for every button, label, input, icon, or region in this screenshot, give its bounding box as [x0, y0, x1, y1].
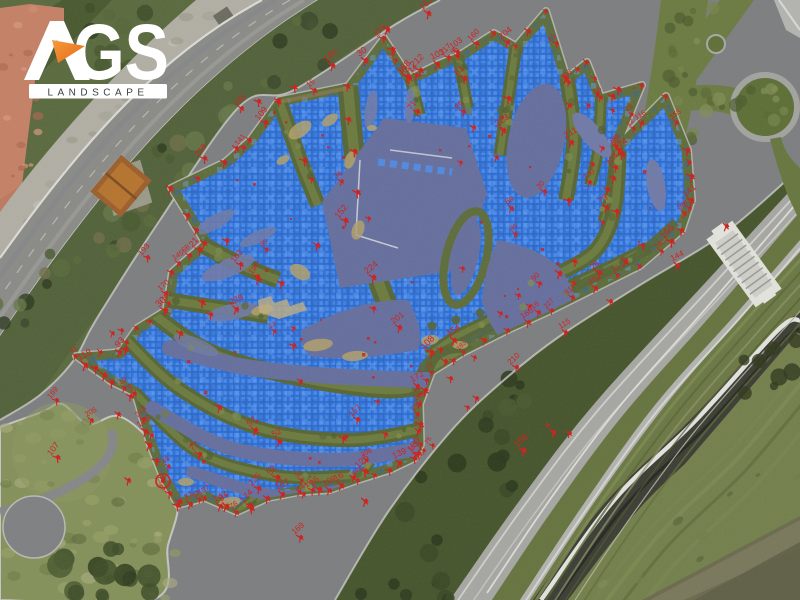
svg-text:GS: GS — [73, 7, 169, 96]
svg-text:LANDSCAPE: LANDSCAPE — [47, 88, 148, 99]
